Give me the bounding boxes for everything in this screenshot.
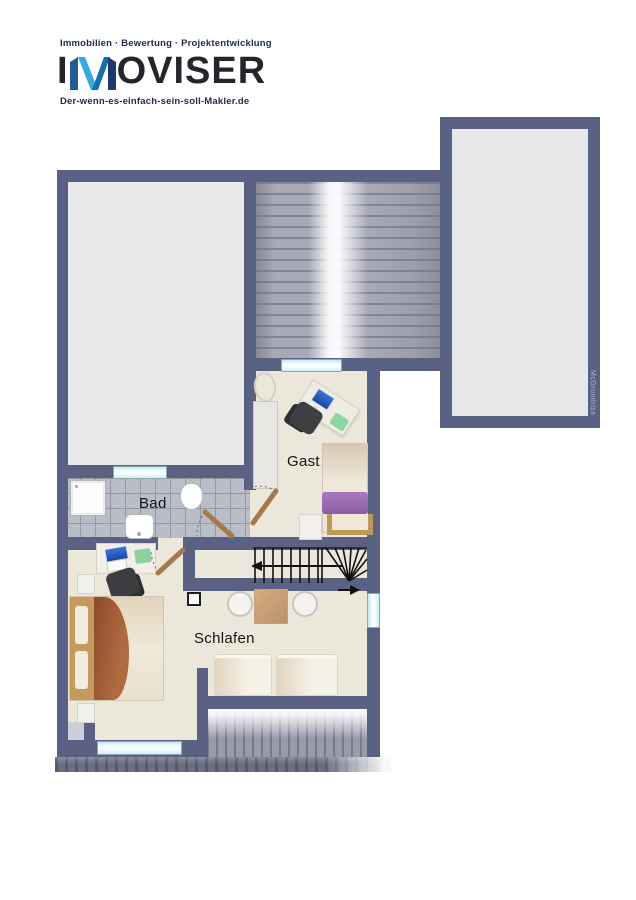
chair-right	[292, 591, 318, 617]
shower	[70, 480, 106, 516]
watermark-text: McGrundriss	[589, 370, 596, 424]
wall-roof-slope-left	[197, 668, 208, 757]
guest-bed-blanket	[322, 492, 368, 514]
annex-room	[452, 129, 588, 416]
bedroom-bottom-window	[97, 741, 182, 755]
headboard-slat	[75, 651, 88, 689]
bathroom-label: Bad	[139, 495, 167, 512]
wall-stairs-top	[183, 537, 380, 550]
brand-logo: I OVISER	[57, 52, 266, 90]
wall-stub	[183, 550, 195, 578]
roof-eave-band	[55, 757, 391, 772]
bed-headboard	[70, 597, 95, 700]
guest-room-label: Gast	[287, 453, 320, 470]
chair-left	[227, 591, 253, 617]
mattress-left	[214, 654, 272, 696]
brand-tagline: Immobilien · Bewertung · Projektentwickl…	[60, 38, 272, 49]
floor-plan-page: Immobilien · Bewertung · Projektentwickl…	[0, 0, 636, 900]
logo-suffix: OVISER	[117, 52, 267, 90]
table	[254, 589, 288, 624]
wall-right	[367, 358, 380, 757]
mattress-right	[276, 654, 338, 696]
attic-room-left	[67, 182, 244, 465]
column-marker	[187, 592, 201, 606]
guest-room-window	[281, 359, 342, 372]
roof-slope-area	[207, 708, 368, 757]
wall-roof-bottom	[245, 358, 445, 371]
bed-blanket	[94, 597, 129, 700]
shower-drain	[75, 485, 78, 488]
sink-faucet	[137, 532, 141, 536]
double-bed	[69, 596, 164, 701]
guest-bed-footboard	[327, 514, 373, 535]
toilet	[180, 483, 203, 510]
wall-roof-slope-top	[205, 696, 368, 709]
guest-wardrobe	[253, 401, 278, 489]
bedroom-desk-pad	[134, 548, 152, 564]
bathroom-window	[113, 466, 167, 479]
sink	[125, 514, 154, 539]
guest-desk-pad	[329, 412, 349, 432]
logo-m-icon	[70, 53, 116, 90]
roof-dormer-area	[256, 182, 443, 358]
bedroom-side-window	[367, 593, 380, 628]
headboard-slat	[75, 606, 88, 644]
bedroom-label: Schlafen	[194, 630, 255, 647]
nightstand-bottom	[77, 703, 95, 723]
wall-left	[57, 170, 68, 757]
guest-bed	[322, 443, 368, 533]
guest-dresser	[299, 514, 322, 540]
logo-letter-i: I	[57, 52, 69, 90]
brand-domain-line: Der-wenn-es-einfach-sein-soll-Makler.de	[60, 96, 249, 107]
nightstand-top	[77, 574, 95, 594]
wall-corner-pillar	[84, 721, 95, 757]
